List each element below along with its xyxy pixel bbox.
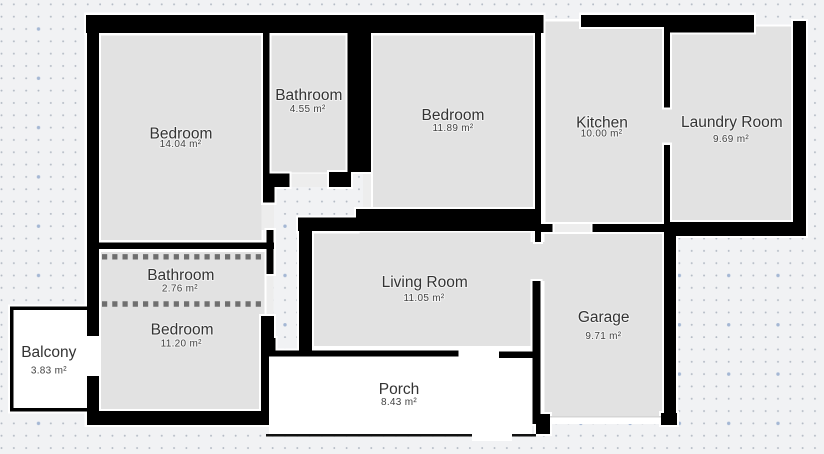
svg-text:11.05 m²: 11.05 m² bbox=[403, 293, 444, 304]
svg-text:Bathroom: Bathroom bbox=[275, 87, 342, 104]
svg-text:Garage: Garage bbox=[578, 309, 630, 326]
svg-text:Bedroom: Bedroom bbox=[422, 107, 485, 124]
svg-text:9.69 m²: 9.69 m² bbox=[713, 134, 749, 145]
svg-text:2.76 m²: 2.76 m² bbox=[162, 284, 198, 295]
svg-text:3.83 m²: 3.83 m² bbox=[31, 365, 67, 376]
svg-text:Porch: Porch bbox=[379, 381, 420, 398]
svg-text:Balcony: Balcony bbox=[21, 344, 76, 361]
svg-text:14.04 m²: 14.04 m² bbox=[160, 139, 202, 150]
svg-text:Bedroom: Bedroom bbox=[151, 321, 214, 338]
svg-text:Living Room: Living Room bbox=[382, 274, 468, 291]
svg-text:10.00 m²: 10.00 m² bbox=[581, 129, 623, 140]
svg-text:9.71 m²: 9.71 m² bbox=[585, 331, 621, 342]
svg-text:4.55 m²: 4.55 m² bbox=[290, 104, 326, 115]
svg-text:11.89 m²: 11.89 m² bbox=[432, 123, 473, 134]
svg-text:Bathroom: Bathroom bbox=[147, 267, 214, 284]
svg-text:Laundry Room: Laundry Room bbox=[681, 114, 783, 131]
svg-text:8.43 m²: 8.43 m² bbox=[381, 397, 417, 408]
svg-text:11.20 m²: 11.20 m² bbox=[161, 338, 202, 349]
